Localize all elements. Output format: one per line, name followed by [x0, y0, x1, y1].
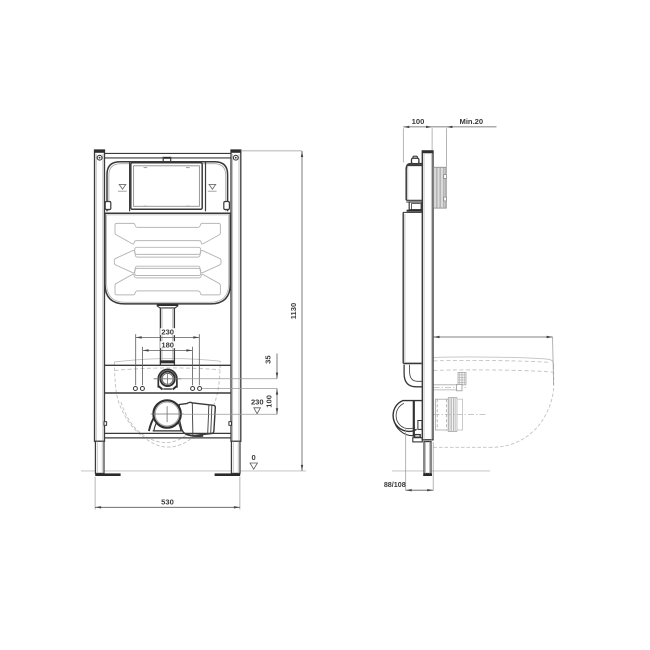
- svg-text:230: 230: [161, 328, 174, 337]
- svg-text:0: 0: [251, 453, 255, 462]
- svg-text:180: 180: [161, 341, 174, 350]
- svg-text:35: 35: [263, 355, 272, 364]
- svg-text:100: 100: [265, 395, 274, 408]
- svg-text:100: 100: [412, 117, 425, 126]
- svg-text:230: 230: [251, 397, 264, 406]
- svg-text:530: 530: [161, 498, 174, 507]
- svg-text:Min.20: Min.20: [460, 117, 484, 126]
- svg-text:88/108: 88/108: [384, 480, 406, 489]
- svg-text:1130: 1130: [289, 303, 298, 319]
